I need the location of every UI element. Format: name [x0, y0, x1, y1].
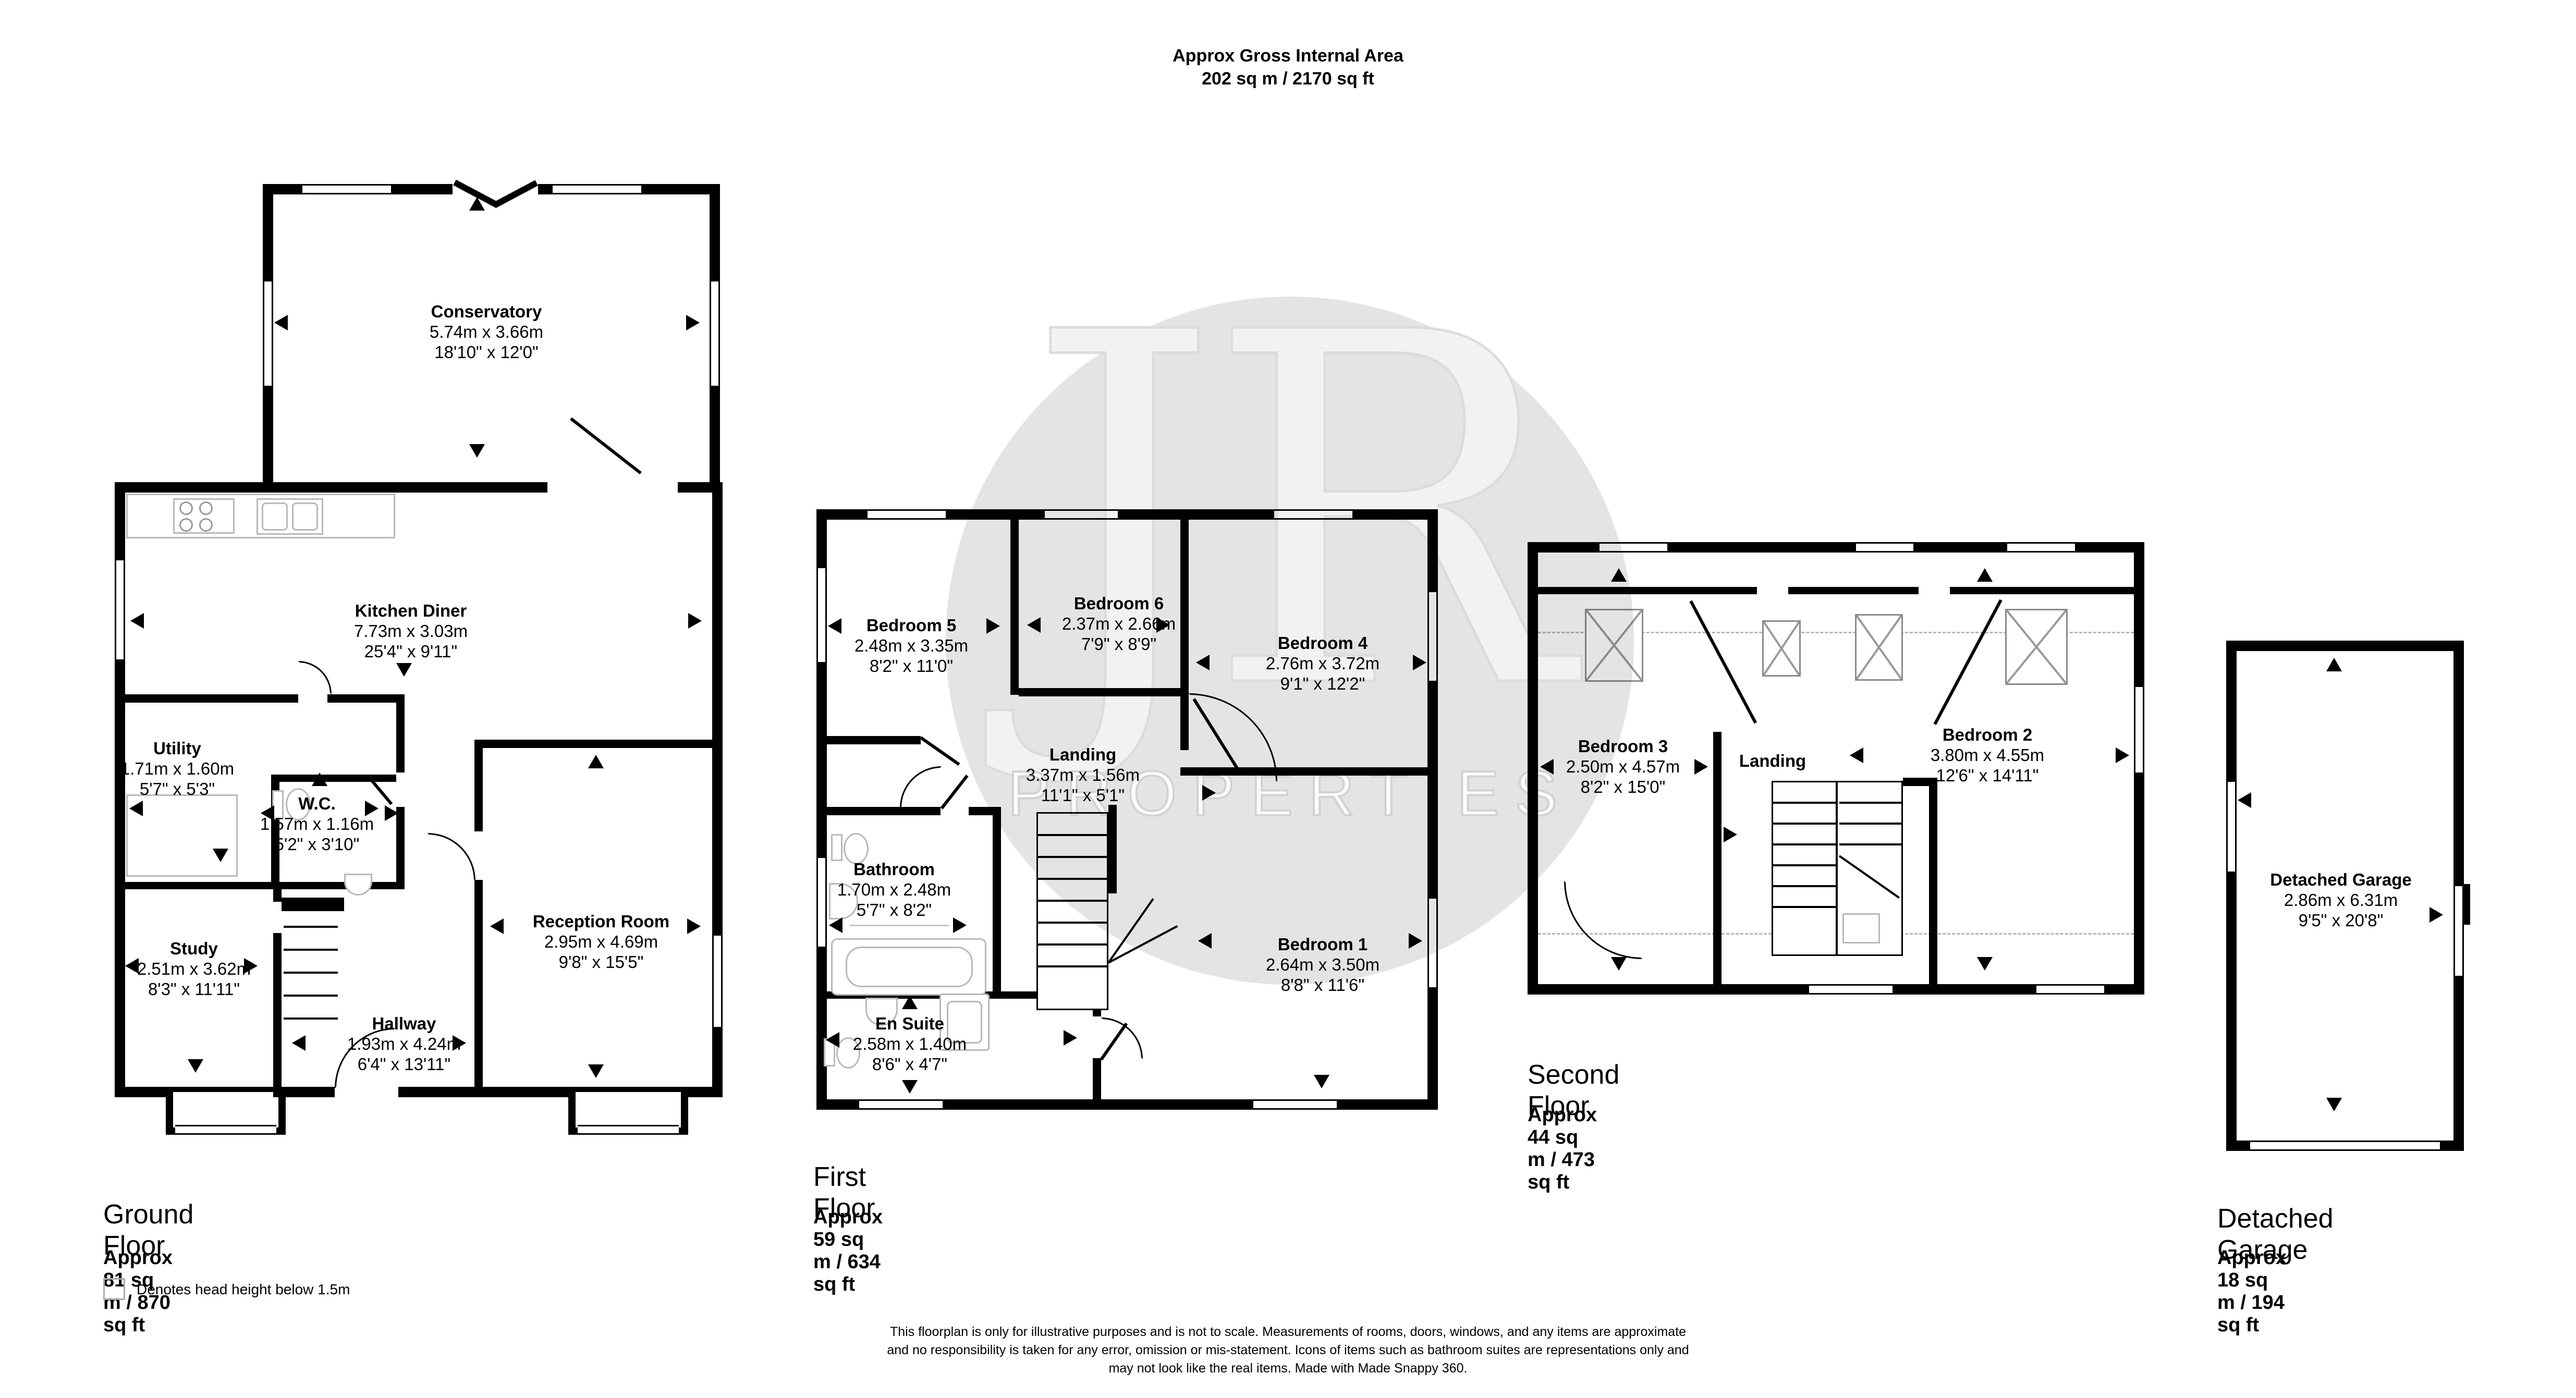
measure-arrow-left: [490, 918, 504, 934]
stair-tread: [1038, 834, 1107, 836]
measure-arrow-left: [2238, 792, 2251, 808]
roof-window: [1855, 614, 1903, 681]
measure-arrow-left: [130, 613, 144, 629]
window: [175, 1125, 276, 1135]
window: [859, 1099, 943, 1110]
stair-tread: [1038, 943, 1107, 946]
wall: [816, 736, 921, 744]
measure-arrow-down: [1611, 957, 1627, 971]
measure-arrow-down: [188, 1059, 203, 1073]
window: [1600, 542, 1667, 553]
roof-window: [2005, 609, 2068, 685]
room-dims-imperial: 9'1" x 12'2": [1266, 673, 1379, 694]
measure-arrow-right: [1409, 933, 1422, 949]
window: [1045, 509, 1118, 520]
room-dims-imperial: 7'9" x 8'9": [1062, 634, 1176, 654]
measure-arrow-left: [826, 1032, 839, 1048]
window: [1253, 1099, 1337, 1110]
wall: [327, 694, 405, 703]
measure-arrow-right: [1413, 655, 1426, 670]
wall: [1788, 587, 1919, 594]
room-name: Bedroom 3: [1566, 736, 1680, 756]
stair-tread: [1038, 900, 1107, 902]
floorplan-canvas: Approx Gross Internal Area 202 sq m / 21…: [0, 0, 2576, 1398]
measure-arrow-left: [1027, 617, 1041, 633]
measure-arrow-right: [2116, 747, 2129, 763]
room-label-reception-room: Reception Room 2.95m x 4.69m 9'8" x 15'5…: [533, 911, 669, 972]
measure-arrow-left: [274, 315, 288, 330]
wall: [1929, 778, 1937, 995]
stair-tread: [284, 926, 338, 928]
measure-arrow-down: [902, 1080, 918, 1094]
measure-arrow-right: [687, 918, 701, 934]
disclaimer-line1: This floorplan is only for illustrative …: [0, 1323, 2576, 1341]
wall: [1180, 509, 1189, 750]
window: [2007, 542, 2075, 553]
room-dims-metric: 7.73m x 3.03m: [354, 621, 468, 641]
wall: [1093, 1058, 1101, 1110]
hob-ring: [199, 518, 213, 532]
room-name: Landing: [1026, 744, 1140, 765]
window: [868, 509, 946, 520]
hob-ring: [179, 501, 193, 515]
room-name: En Suite: [853, 1013, 967, 1034]
stair-tread: [284, 1017, 338, 1020]
measure-arrow-up: [588, 755, 604, 768]
disclaimer-line3: may not look like the real items. Made w…: [0, 1359, 2576, 1378]
stair-divider: [1836, 781, 1838, 956]
room-label-bedroom-6: Bedroom 6 2.37m x 2.66m 7'9" x 8'9": [1062, 593, 1176, 654]
stair-tread: [1839, 823, 1901, 825]
wall: [1538, 587, 1757, 594]
measure-arrow-up: [902, 996, 918, 1009]
room-label-hallway: Hallway 1.93m x 4.24m 6'4" x 13'11": [347, 1013, 461, 1074]
measure-arrow-left: [1198, 933, 1212, 949]
window: [712, 936, 723, 1027]
room-dims-imperial: 18'10" x 12'0": [430, 342, 543, 362]
room-dims-imperial: 8'3" x 11'11": [137, 979, 251, 999]
room-name: Bedroom 1: [1266, 934, 1379, 954]
wall: [816, 807, 941, 815]
room-dims-metric: 1.71m x 1.60m: [120, 758, 234, 779]
hob-ring: [179, 518, 193, 532]
measure-arrow-up: [2326, 658, 2342, 671]
window: [2453, 886, 2464, 976]
room-name: Kitchen Diner: [354, 600, 468, 621]
measure-arrow-left: [828, 618, 841, 634]
measure-arrow-down: [1314, 1075, 1329, 1088]
sink-bowl: [292, 502, 318, 531]
room-name: Landing: [1739, 751, 1806, 771]
wall: [279, 775, 396, 782]
room-label-bathroom: Bathroom 1.70m x 2.48m 5'7" x 8'2": [837, 859, 951, 920]
wall: [1713, 732, 1722, 995]
room-name: Bathroom: [837, 859, 951, 879]
first-floor-area: Approx 59 sq m / 634 sq ft: [813, 1206, 883, 1296]
room-dims-metric: 2.37m x 2.66m: [1062, 614, 1176, 634]
wall: [396, 694, 405, 772]
measure-arrow-down: [1977, 957, 1993, 971]
room-label-bedroom-2: Bedroom 2 3.80m x 4.55m 12'6" x 14'11": [1931, 725, 2044, 786]
window: [2226, 782, 2237, 872]
room-dims-metric: 1.57m x 1.16m: [260, 814, 374, 834]
stair-void: [1842, 913, 1880, 943]
room-label-wc: W.C. 1.57m x 1.16m 5'2" x 3'10": [260, 793, 374, 854]
wall: [474, 880, 483, 1097]
room-dims-metric: 2.58m x 1.40m: [853, 1034, 967, 1054]
title-line1: Approx Gross Internal Area: [0, 44, 2576, 67]
measure-arrow-left: [129, 801, 143, 816]
measure-arrow-right: [385, 805, 398, 821]
stairs-wall: [282, 898, 344, 911]
room-dims-imperial: 6'4" x 13'11": [347, 1054, 461, 1074]
room-name: Bedroom 5: [854, 615, 968, 635]
bathtub-inner: [846, 947, 973, 987]
measure-arrow-down: [469, 444, 485, 458]
room-dims-imperial: 9'8" x 15'5": [533, 952, 669, 972]
title-line2: 202 sq m / 2170 sq ft: [0, 67, 2576, 90]
measure-arrow-up: [312, 772, 327, 786]
room-dims-metric: 2.48m x 3.35m: [854, 635, 968, 656]
window: [263, 281, 273, 386]
window: [1427, 592, 1438, 681]
room-name: Utility: [120, 738, 234, 758]
room-dims-metric: 1.93m x 4.24m: [347, 1034, 461, 1054]
room-label-landing-first: Landing 3.37m x 1.56m 11'1" x 5'1": [1026, 744, 1140, 805]
room-dims-metric: 5.74m x 3.66m: [430, 322, 543, 342]
room-dims-metric: 2.51m x 3.62m: [137, 959, 251, 979]
window: [2036, 984, 2104, 995]
stair-tread: [1773, 885, 1836, 887]
wall: [115, 694, 298, 703]
measure-arrow-right: [986, 618, 1000, 634]
stair-tread: [1773, 802, 1836, 804]
wall: [1019, 688, 1180, 696]
head-height-legend-icon: [103, 1278, 125, 1300]
measure-arrow-left: [1196, 655, 1210, 670]
stair-tread: [1038, 922, 1107, 924]
measure-arrow-right: [686, 315, 700, 330]
measure-arrow-right: [1064, 1030, 1077, 1046]
window: [816, 858, 827, 947]
room-label-conservatory: Conservatory 5.74m x 3.66m 18'10" x 12'0…: [430, 301, 543, 362]
measure-arrow-right: [688, 613, 702, 629]
window: [1427, 899, 1438, 987]
door-opening: [547, 472, 678, 504]
room-name: Study: [137, 938, 251, 959]
room-name: Conservatory: [430, 301, 543, 322]
stair-tread: [1038, 965, 1107, 967]
room-dims-metric: 3.37m x 1.56m: [1026, 765, 1140, 785]
wall: [273, 933, 282, 1097]
stair-tread: [1839, 802, 1901, 804]
room-dims-imperial: 9'5" x 20'8": [2270, 910, 2411, 930]
disclaimer: This floorplan is only for illustrative …: [0, 1323, 2576, 1378]
roof-window: [1585, 609, 1643, 682]
room-name: Reception Room: [533, 911, 669, 931]
room-dims-metric: 2.64m x 3.50m: [1266, 954, 1379, 975]
measure-arrow-right: [953, 917, 967, 933]
hob-ring: [199, 501, 213, 515]
stairs-first-floor: [1036, 812, 1108, 1010]
wall: [993, 807, 1001, 999]
room-dims-metric: 2.76m x 3.72m: [1266, 653, 1379, 673]
disclaimer-line2: and no responsibility is taken for any e…: [0, 1341, 2576, 1359]
garage-door: [2250, 1141, 2440, 1151]
room-label-bedroom-5: Bedroom 5 2.48m x 3.35m 8'2" x 11'0": [854, 615, 968, 676]
measure-arrow-right: [1202, 785, 1216, 801]
measure-arrow-left: [1850, 747, 1863, 763]
room-label-utility: Utility 1.71m x 1.60m 5'7" x 5'3": [120, 738, 234, 799]
room-dims-imperial: 5'2" x 3'10": [260, 834, 374, 854]
second-floor-area: Approx 44 sq m / 473 sq ft: [1528, 1104, 1597, 1194]
room-label-en-suite: En Suite 2.58m x 1.40m 8'6" x 4'7": [853, 1013, 967, 1074]
window: [115, 560, 125, 659]
dimension-line: [850, 925, 949, 926]
roof-window: [1762, 620, 1801, 677]
room-name: Detached Garage: [2270, 869, 2411, 890]
room-label-bedroom-4: Bedroom 4 2.76m x 3.72m 9'1" x 12'2": [1266, 633, 1379, 694]
wall: [1950, 587, 2134, 594]
wall: [1108, 805, 1117, 893]
room-dims-imperial: 8'2" x 11'0": [854, 656, 968, 676]
room-dims-imperial: 5'7" x 5'3": [120, 779, 234, 799]
utility-counter: [126, 794, 238, 877]
window: [2134, 687, 2144, 772]
room-dims-metric: 1.70m x 2.48m: [837, 879, 951, 900]
sink-bowl: [262, 502, 288, 531]
room-dims-imperial: 5'7" x 8'2": [837, 900, 951, 920]
stair-tread: [284, 995, 338, 997]
window: [1809, 984, 1893, 995]
measure-arrow-right: [1724, 827, 1737, 842]
stair-tread: [284, 949, 338, 951]
room-label-bedroom-3: Bedroom 3 2.50m x 4.57m 8'2" x 15'0": [1566, 736, 1680, 797]
room-dims-imperial: 12'6" x 14'11": [1931, 765, 2044, 786]
stair-tread: [1038, 856, 1107, 858]
wall: [273, 889, 282, 902]
room-label-bedroom-1: Bedroom 1 2.64m x 3.50m 8'8" x 11'6": [1266, 934, 1379, 995]
measure-arrow-left: [292, 1035, 306, 1051]
measure-arrow-down: [588, 1064, 604, 1078]
wall: [474, 740, 723, 748]
room-name: Bedroom 2: [1931, 725, 2044, 745]
window: [302, 184, 391, 194]
wall: [474, 748, 483, 831]
room-dims-metric: 2.86m x 6.31m: [2270, 890, 2411, 910]
room-dims-metric: 2.50m x 4.57m: [1566, 756, 1680, 777]
front-door-opening: [335, 1087, 398, 1108]
room-dims-imperial: 8'2" x 15'0": [1566, 777, 1680, 797]
room-dims-metric: 3.80m x 4.55m: [1931, 745, 2044, 765]
room-label-landing-second: Landing: [1739, 751, 1806, 771]
room-dims-imperial: 8'6" x 4'7": [853, 1054, 967, 1074]
gross-internal-area-title: Approx Gross Internal Area 202 sq m / 21…: [0, 44, 2576, 90]
measure-arrow-down: [213, 849, 228, 862]
room-dims-imperial: 8'8" x 11'6": [1266, 975, 1379, 995]
room-name: Hallway: [347, 1013, 461, 1034]
measure-arrow-up: [469, 197, 485, 211]
stair-tread: [284, 972, 338, 974]
stair-tread: [1773, 864, 1836, 866]
room-dims-metric: 2.95m x 4.69m: [533, 931, 669, 952]
room-dims-imperial: 25'4" x 9'11": [354, 641, 468, 661]
measure-arrow-right: [1694, 759, 1708, 775]
window: [1856, 542, 1913, 553]
measure-arrow-up: [1977, 568, 1993, 582]
stair-tread: [1773, 843, 1836, 845]
measure-arrow-left: [1540, 759, 1554, 775]
measure-arrow-down: [2326, 1098, 2342, 1111]
stair-tread: [1773, 906, 1836, 908]
stair-tread: [1038, 878, 1107, 880]
room-label-study: Study 2.51m x 3.62m 8'3" x 11'11": [137, 938, 251, 999]
window: [710, 281, 720, 386]
room-dims-imperial: 11'1" x 5'1": [1026, 785, 1140, 805]
window: [816, 568, 827, 662]
measure-arrow-down: [396, 663, 412, 677]
stair-tread: [1839, 843, 1901, 845]
room-name: Bedroom 6: [1062, 593, 1176, 614]
window: [1274, 509, 1352, 520]
room-name: Bedroom 4: [1266, 633, 1379, 653]
toilet-cistern: [831, 834, 843, 861]
window: [578, 1125, 679, 1135]
room-label-detached-garage: Detached Garage 2.86m x 6.31m 9'5" x 20'…: [2270, 869, 2411, 930]
room-name: W.C.: [260, 793, 374, 814]
measure-arrow-up: [1611, 568, 1627, 582]
window: [553, 184, 641, 194]
stair-tread: [1773, 823, 1836, 825]
head-height-legend-text: Denotes head height below 1.5m: [137, 1281, 350, 1298]
room-label-kitchen-diner: Kitchen Diner 7.73m x 3.03m 25'4" x 9'11…: [354, 600, 468, 661]
wall: [1010, 509, 1019, 695]
measure-arrow-right: [2430, 907, 2443, 923]
